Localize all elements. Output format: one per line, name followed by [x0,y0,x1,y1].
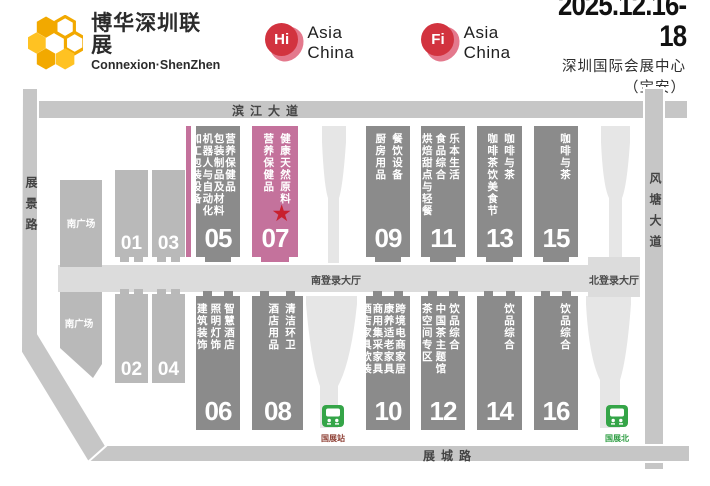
hall-11-entrance-tab [430,257,456,262]
hall-09-categories: 餐饮设备 厨房用品 [371,133,405,181]
road-top [38,100,688,119]
hall-13-categories: 咖啡与茶 咖啡茶饮美食节 [483,133,517,217]
hall-07-categories: 健康天然原料 营养保健品 [259,133,293,205]
hall-05-number: 05 [196,223,240,254]
hall-10-number: 10 [366,396,410,427]
south-lobby-label: 南登录大厅 [300,272,372,287]
hall-13-number: 13 [477,223,522,254]
hall-15-categories: 咖啡与茶 [556,133,573,181]
hall-06-number: 06 [196,396,240,427]
hall-07-highlighted: 健康天然原料 营养保健品 ★ 07 [252,126,298,257]
hall-04-number: 04 [152,359,185,381]
hall-16-categories: 饮品综合 [556,303,573,351]
floorplan-map: 滨江大道 展城路 展景路 风塘大道 南登录大厅 北登录大厅 南广场 南广场 01… [0,85,710,486]
event-date-block: 2025.12.16-18 深圳国际会展中心（宝安） [534,0,690,97]
road-right-label: 风塘大道 [647,172,664,256]
corridor-upper-right [601,126,630,263]
hall-01-number: 01 [115,233,148,255]
metro-station-right: 国展北 [595,405,639,444]
logo: 博华深圳联展 Connexion·ShenZhen [28,13,221,72]
hall-07-number: 07 [252,223,298,254]
honeycomb-logo-icon [28,15,83,71]
hall-14: 饮品综合 14 [477,296,522,430]
hall-10-categories: 跨境电商家居 康养适老家具 商用集采家具 酒店家具软装 [360,303,405,375]
hi-badge-circle: Hi [265,23,298,56]
hall-15-number: 15 [534,223,578,254]
metro-icon [606,405,628,427]
hall-02-number: 02 [115,359,148,381]
metro-station-left-name: 国展站 [311,433,355,444]
hall-11-number: 11 [421,223,465,254]
metro-icon [322,405,344,427]
fi-asia-china-badge: Fi Asia China [421,23,533,63]
hall-12-number: 12 [421,396,465,427]
hall-05-categories: 营养保健品 包装制品及材料 机器人与自动化 加工包装设备 [190,133,235,217]
hall-09-entrance-tab [375,257,401,262]
plaza-lower-shape [60,292,102,378]
road-bottom [88,445,690,462]
hall-13-entrance-tab [486,257,513,262]
hall-03: 03 [152,170,185,257]
hall-08-categories: 清洁环卫 酒店用品 [264,303,298,351]
hall-14-categories: 饮品综合 [500,303,517,351]
hall-08: 清洁环卫 酒店用品 08 [252,296,303,430]
logo-title: 博华深圳联展 [91,13,221,57]
hall-03-number: 03 [152,233,185,255]
metro-station-right-name: 国展北 [595,433,639,444]
logo-subtitle: Connexion·ShenZhen [91,59,221,72]
hall-09: 餐饮设备 厨房用品 09 [366,126,410,257]
hall-06-categories: 智慧酒店 照明灯饰 建筑装饰 [194,303,235,351]
hi-asia-china-badge: Hi Asia China [265,23,377,63]
hall-15: 咖啡与茶 15 [534,126,578,257]
hall-09-number: 09 [366,223,410,254]
hall-07-entrance-tab [261,257,289,262]
road-left-label: 展景路 [23,176,40,239]
hall-16: 饮品综合 16 [534,296,578,430]
hall-11: 乐本生活 食品综合 烘焙甜点与轻餐 11 [421,126,465,257]
hall-02: 02 [115,294,148,383]
plaza-upper-label: 南广场 [60,216,102,230]
star-icon: ★ [271,202,292,225]
corridor-upper-left [322,126,346,263]
hall-01: 01 [115,170,148,257]
hall-08-number: 08 [252,396,303,427]
metro-station-left: 国展站 [311,405,355,444]
hall-05: 营养保健品 包装制品及材料 机器人与自动化 加工包装设备 05 [196,126,240,257]
hall-05-entrance-tab [205,257,231,262]
north-lobby-label: 北登录大厅 [584,272,644,287]
hall-12: 饮品综合 中国茶主题馆 茶空间专区 12 [421,296,465,430]
hall-04: 04 [152,294,185,383]
hall-15-entrance-tab [543,257,569,262]
plaza-lower-label: 南广场 [60,316,98,330]
road-top-label: 滨江大道 [228,102,308,119]
hall-12-categories: 饮品综合 中国茶主题馆 茶空间专区 [419,303,460,375]
hall-10: 跨境电商家居 康养适老家具 商用集采家具 酒店家具软装 10 [366,296,410,430]
hi-badge-label: Asia China [307,23,377,63]
header: 博华深圳联展 Connexion·ShenZhen Hi Asia China … [0,0,710,86]
fi-badge-label: Asia China [464,23,534,63]
hall-16-number: 16 [534,396,578,427]
hall-06: 智慧酒店 照明灯饰 建筑装饰 06 [196,296,240,430]
road-right [644,88,664,470]
road-bottom-label: 展城路 [405,447,495,464]
event-date: 2025.12.16-18 [555,0,686,53]
hall-11-categories: 乐本生活 食品综合 烘焙甜点与轻餐 [419,133,460,217]
hall-13: 咖啡与茶 咖啡茶饮美食节 13 [477,126,522,257]
hall-14-number: 14 [477,396,522,427]
